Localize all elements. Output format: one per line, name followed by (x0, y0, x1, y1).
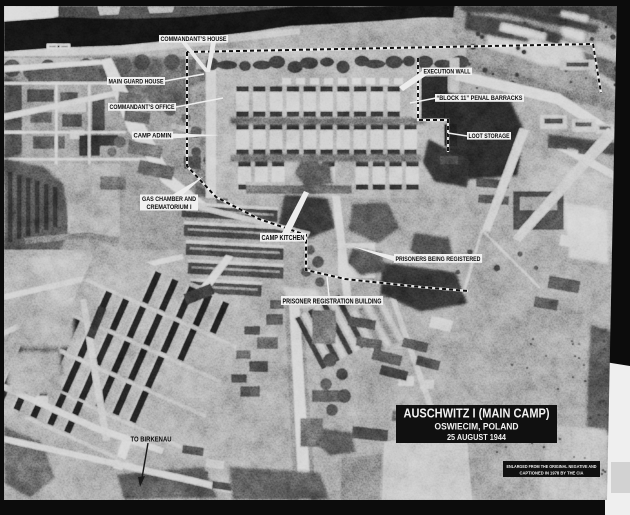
svg-text:PRISONER REGISTRATION BUILDING: PRISONER REGISTRATION BUILDING (283, 298, 382, 305)
svg-text:COMMANDANT’S OFFICE: COMMANDANT’S OFFICE (110, 104, 175, 111)
svg-text:LOOT STORAGE: LOOT STORAGE (469, 133, 510, 140)
svg-text:GAS CHAMBER AND: GAS CHAMBER AND (142, 196, 196, 203)
svg-text:AUSCHWITZ I (MAIN CAMP): AUSCHWITZ I (MAIN CAMP) (404, 407, 550, 421)
svg-text:CREMATORIUM I: CREMATORIUM I (147, 204, 192, 211)
svg-text:CAPTIONED IN 1978 BY THE CIA: CAPTIONED IN 1978 BY THE CIA (520, 471, 585, 476)
svg-text:CAMP ADMIN: CAMP ADMIN (134, 133, 172, 140)
svg-text:COMMANDANT’S HOUSE: COMMANDANT’S HOUSE (161, 36, 227, 43)
svg-text:EXECUTION WALL: EXECUTION WALL (424, 68, 471, 75)
svg-text:OSWIECIM, POLAND: OSWIECIM, POLAND (435, 422, 519, 432)
svg-text:CAMP KITCHEN: CAMP KITCHEN (262, 235, 305, 242)
svg-text:MAIN GUARD HOUSE: MAIN GUARD HOUSE (109, 78, 164, 85)
svg-text:“BLOCK 11” PENAL BARRACKS: “BLOCK 11” PENAL BARRACKS (437, 95, 523, 102)
svg-text:ENLARGED FROM THE ORIGINAL NEG: ENLARGED FROM THE ORIGINAL NEGATIVE AND (507, 464, 598, 469)
svg-text:PRISONERS BEING REGISTERED: PRISONERS BEING REGISTERED (396, 256, 481, 263)
svg-text:25 AUGUST 1944: 25 AUGUST 1944 (447, 433, 506, 442)
svg-text:TO BIRKENAU: TO BIRKENAU (131, 435, 172, 444)
